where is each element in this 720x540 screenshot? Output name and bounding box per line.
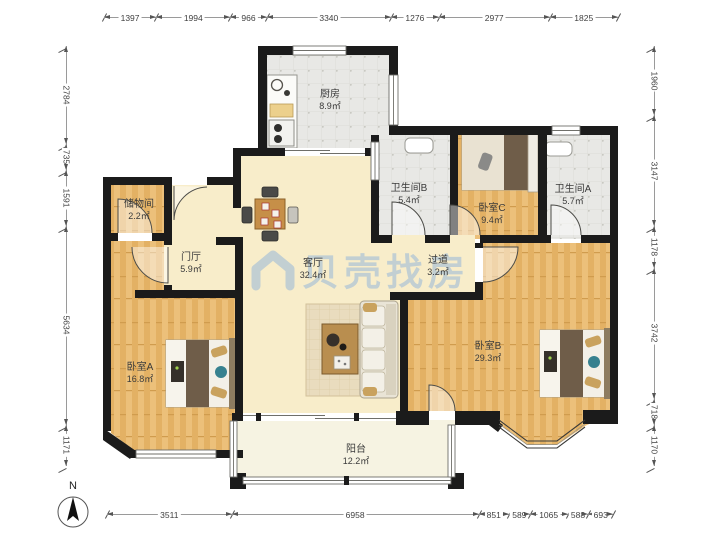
- coffee-table: [322, 324, 358, 374]
- dimension-segment: 693: [588, 514, 613, 515]
- dimension-label: 589: [510, 510, 528, 520]
- north-arrow-icon: [50, 492, 96, 532]
- dimension-segment: 718: [654, 399, 655, 424]
- kitchen-right-window: [389, 75, 398, 125]
- dimension-segment: 851: [479, 514, 509, 515]
- bath-a-top-window: [552, 126, 580, 135]
- dimension-segment: 5634: [66, 226, 67, 425]
- bath-a-basin: [545, 142, 572, 156]
- dimension-label: 1178: [650, 236, 660, 258]
- dimension-segment: 1591: [66, 170, 67, 226]
- dimension-segment: 3742: [654, 268, 655, 400]
- dimension-label: 3147: [650, 159, 660, 182]
- room-label-kitchen: 厨房 8.9㎡: [319, 89, 341, 111]
- dimension-label: 851: [485, 510, 503, 520]
- dimension-label: 1065: [537, 510, 560, 520]
- bed-a: [166, 338, 235, 409]
- dimension-segment: 1276: [391, 17, 439, 18]
- bed-a-window: [136, 450, 216, 458]
- room-label-corridor: 过道 3.2㎡: [427, 255, 449, 277]
- dimension-label: 1276: [403, 13, 426, 23]
- balcony-west-window: [230, 421, 237, 477]
- dimension-segment: 6958: [232, 514, 479, 515]
- balcony-sliding-door: [243, 413, 396, 421]
- compass-north: N: [50, 480, 96, 537]
- dimension-label: 718: [650, 403, 660, 421]
- kitchen-top-window: [293, 46, 346, 55]
- dimension-label: 966: [239, 13, 257, 23]
- dimension-label: 1960: [650, 69, 660, 92]
- dimension-segment: 2977: [439, 17, 550, 18]
- dimension-segment: 1171: [66, 425, 67, 466]
- dimension-label: 6958: [344, 510, 367, 520]
- bath-b-basin: [405, 138, 433, 153]
- dimension-segment: 1397: [104, 17, 156, 18]
- dimension-segment: 966: [230, 17, 266, 18]
- bath-b-left-window: [371, 142, 379, 180]
- dimension-label: 2977: [483, 13, 506, 23]
- dimension-segment: 735: [66, 144, 67, 170]
- dimension-segment: 1065: [530, 514, 568, 515]
- dimension-label: 735: [62, 148, 72, 166]
- dimension-segment: 3147: [654, 115, 655, 226]
- dimension-label: 3511: [158, 510, 180, 520]
- kitchen-sliding-door: [285, 148, 365, 156]
- dimension-label: 1591: [62, 187, 72, 210]
- room-label-foyer: 门厅 5.9㎡: [180, 252, 202, 274]
- room-label-bed-c: 卧室C 9.4㎡: [478, 203, 505, 225]
- dimension-label: 1171: [62, 434, 72, 456]
- dimension-label: 3742: [650, 322, 660, 345]
- bed-b: [540, 328, 610, 399]
- balcony-east-window: [448, 425, 455, 477]
- dimension-segment: 588: [568, 514, 589, 515]
- bed-c: [462, 133, 538, 192]
- dimension-segment: 1825: [550, 17, 618, 18]
- dimension-label: 1170: [650, 434, 660, 456]
- sofa: [360, 301, 398, 398]
- dimension-label: 1825: [572, 13, 595, 23]
- room-label-balcony: 阳台 12.2㎡: [343, 444, 370, 466]
- dimension-label: 588: [569, 510, 587, 520]
- room-label-bed-b: 卧室B 29.3㎡: [475, 341, 502, 363]
- balcony-south-window: [243, 476, 451, 485]
- room-label-bath-a: 卫生间A 5.7㎡: [555, 184, 592, 206]
- dimension-segment: 1178: [654, 226, 655, 268]
- room-label-living: 客厅 32.4㎡: [300, 258, 327, 280]
- room-label-bed-a: 卧室A 16.8㎡: [127, 362, 154, 384]
- room-label-bath-b: 卫生间B 5.4㎡: [391, 183, 428, 205]
- dimension-label: 1397: [119, 13, 142, 23]
- dimension-segment: 1960: [654, 46, 655, 115]
- dimension-label: 2784: [62, 84, 72, 107]
- dimension-label: 693: [592, 510, 610, 520]
- dimension-segment: 1994: [156, 17, 230, 18]
- dimension-segment: 1170: [654, 425, 655, 466]
- dimension-segment: 2784: [66, 46, 67, 144]
- dimension-segment: 589: [509, 514, 530, 515]
- dimension-label: 5634: [62, 314, 72, 337]
- dimension-label: 3340: [317, 13, 340, 23]
- floorplan-canvas: 厨房 8.9㎡ 卫生间B 5.4㎡ 卧室C 9.4㎡ 卫生间A 5.7㎡ 储物间…: [0, 0, 720, 540]
- room-label-storage: 储物间 2.2㎡: [124, 199, 154, 221]
- dimension-segment: 3511: [107, 514, 232, 515]
- kitchen-counter: [267, 75, 297, 148]
- dimension-segment: 3340: [267, 17, 392, 18]
- dimension-label: 1994: [182, 13, 205, 23]
- compass-n-label: N: [50, 480, 96, 492]
